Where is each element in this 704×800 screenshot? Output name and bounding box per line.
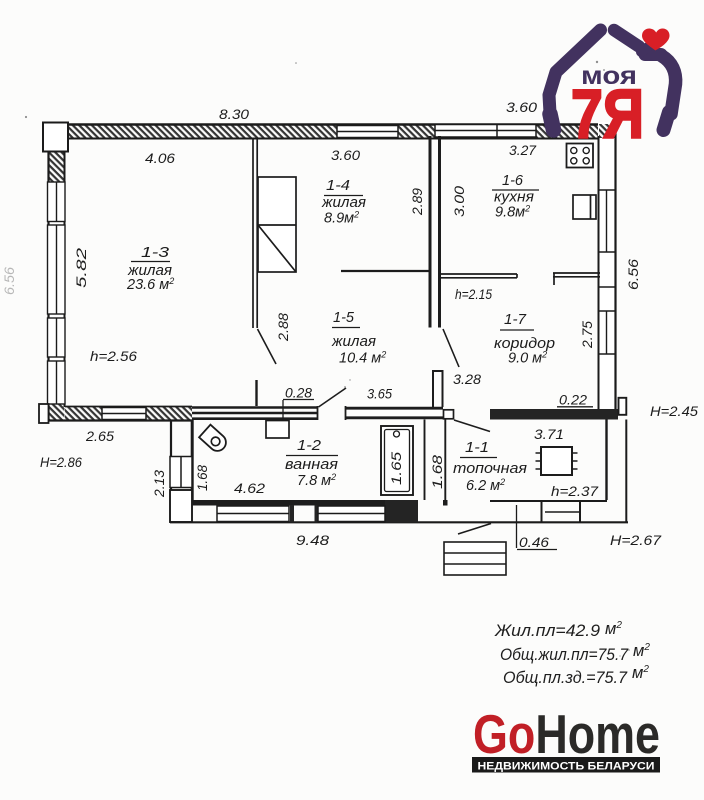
svg-text:2.88: 2.88 [276, 312, 291, 342]
svg-text:1-4: 1-4 [326, 178, 350, 194]
svg-text:3.71: 3.71 [534, 427, 564, 442]
svg-text:9.0 м2: 9.0 м2 [508, 350, 547, 367]
svg-text:1.68: 1.68 [430, 454, 445, 489]
svg-text:7Я: 7Я [571, 76, 644, 153]
svg-text:1-5: 1-5 [333, 310, 355, 326]
svg-text:1-6: 1-6 [502, 173, 524, 189]
svg-text:1-7: 1-7 [504, 312, 527, 328]
svg-text:ванная: ванная [285, 457, 338, 473]
svg-text:8.30: 8.30 [219, 107, 250, 122]
svg-text:жилая: жилая [321, 195, 366, 211]
svg-text:2.65: 2.65 [85, 429, 115, 444]
svg-text:h=2.15: h=2.15 [455, 287, 492, 302]
svg-text:6.56: 6.56 [2, 266, 17, 295]
svg-text:0.22: 0.22 [559, 393, 588, 408]
svg-text:h=2.37: h=2.37 [551, 484, 599, 499]
svg-text:9.48: 9.48 [296, 533, 330, 548]
svg-text:6.2 м2: 6.2 м2 [466, 477, 505, 494]
svg-text:8.9м2: 8.9м2 [324, 210, 359, 227]
svg-text:10.4 м2: 10.4 м2 [339, 350, 386, 367]
svg-text:3.00: 3.00 [452, 185, 467, 217]
svg-text:Жил.пл=42.9: Жил.пл=42.9 [494, 622, 600, 640]
svg-text:1.68: 1.68 [195, 465, 210, 491]
svg-text:Общ.жил.пл=75.7: Общ.жил.пл=75.7 [500, 646, 629, 664]
svg-text:4.62: 4.62 [234, 481, 266, 496]
svg-text:6.56: 6.56 [626, 258, 641, 290]
svg-text:1-1: 1-1 [465, 440, 489, 456]
svg-text:5.82: 5.82 [74, 247, 89, 288]
svg-text:3.60: 3.60 [506, 100, 538, 115]
svg-text:2.89: 2.89 [410, 188, 425, 217]
svg-text:3.60: 3.60 [331, 148, 361, 163]
svg-text:H=2.67: H=2.67 [610, 533, 662, 548]
svg-text:жилая: жилая [331, 334, 376, 350]
svg-text:3.28: 3.28 [453, 372, 482, 387]
svg-text:23.6 м2: 23.6 м2 [126, 276, 174, 293]
svg-text:0.28: 0.28 [285, 386, 312, 401]
svg-text:H=2.86: H=2.86 [40, 455, 82, 470]
svg-text:4.06: 4.06 [145, 151, 176, 166]
svg-text:3.65: 3.65 [367, 387, 392, 402]
svg-text:1.65: 1.65 [389, 451, 404, 485]
svg-text:1-3: 1-3 [141, 245, 169, 261]
svg-text:3.27: 3.27 [509, 143, 536, 158]
svg-text:9.8м2: 9.8м2 [495, 204, 530, 221]
svg-text:НЕДВИЖИМОСТЬ БЕЛАРУСИ: НЕДВИЖИМОСТЬ БЕЛАРУСИ [478, 761, 655, 773]
svg-text:H=2.45: H=2.45 [650, 404, 699, 419]
svg-text:2.13: 2.13 [152, 470, 167, 499]
svg-text:2.75: 2.75 [580, 321, 595, 350]
svg-text:топочная: топочная [453, 461, 527, 477]
svg-text:7.8 м2: 7.8 м2 [297, 472, 336, 489]
svg-text:0.46: 0.46 [519, 535, 550, 550]
svg-text:GoHome: GoHome [473, 703, 660, 765]
svg-text:h=2.56: h=2.56 [90, 349, 138, 364]
svg-text:1-2: 1-2 [297, 438, 321, 454]
svg-text:Общ.пл.зд.=75.7: Общ.пл.зд.=75.7 [503, 669, 628, 687]
